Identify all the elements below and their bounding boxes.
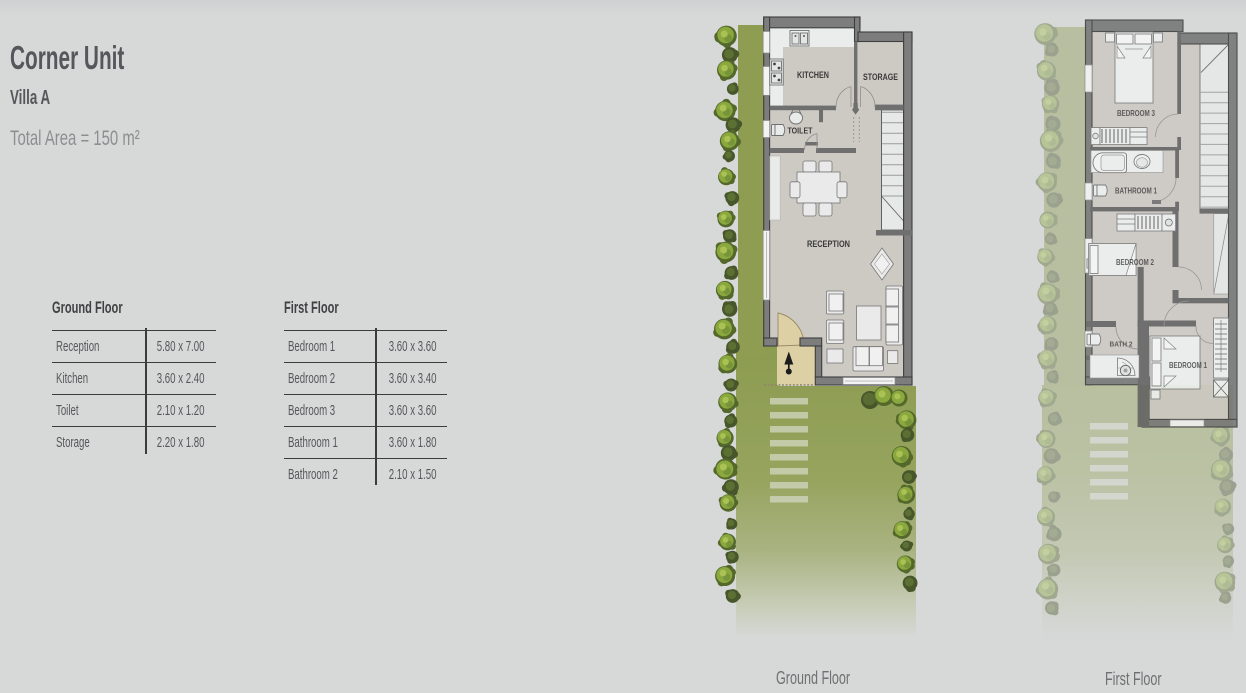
svg-text:BEDROOM 2: BEDROOM 2 [1116,257,1154,267]
svg-text:KITCHEN: KITCHEN [797,70,829,80]
svg-text:BEDROOM 3: BEDROOM 3 [1117,108,1155,118]
svg-text:BATHROOM 1: BATHROOM 1 [1115,186,1157,196]
svg-text:BEDROOM 1: BEDROOM 1 [1169,360,1207,370]
svg-text:RECEPTION: RECEPTION [807,239,850,249]
svg-text:BATH 2: BATH 2 [1110,339,1133,348]
svg-text:TOILET: TOILET [788,127,813,136]
svg-text:STORAGE: STORAGE [863,72,898,82]
